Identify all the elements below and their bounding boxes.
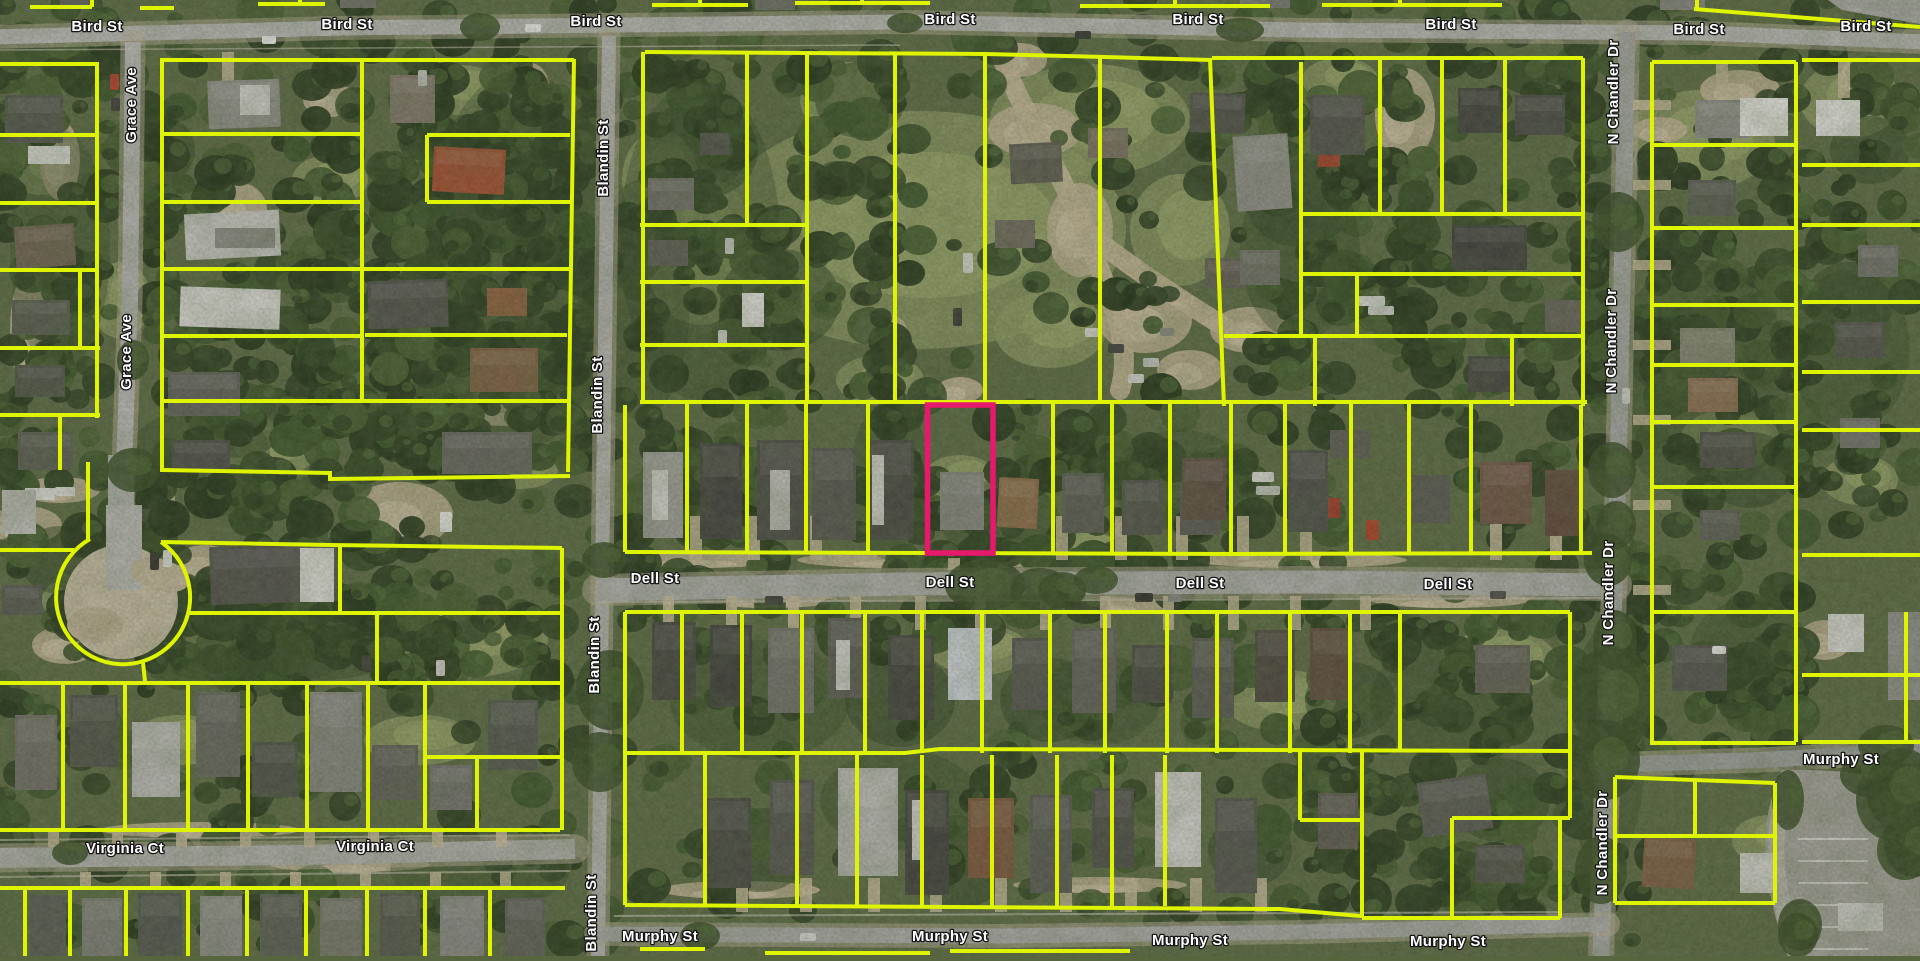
svg-text:Murphy St: Murphy St (1410, 933, 1486, 950)
svg-text:Blandin St: Blandin St (595, 119, 612, 196)
svg-text:Bird St: Bird St (1840, 18, 1891, 35)
svg-text:Bird St: Bird St (321, 16, 372, 33)
svg-text:Bird St: Bird St (1172, 11, 1223, 28)
svg-text:Bird St: Bird St (1673, 21, 1724, 38)
svg-text:Dell St: Dell St (926, 574, 975, 591)
svg-text:Grace Ave: Grace Ave (118, 314, 135, 390)
svg-text:Murphy St: Murphy St (622, 928, 698, 945)
svg-text:Virginia Ct: Virginia Ct (86, 840, 164, 857)
svg-text:Dell St: Dell St (1176, 575, 1225, 592)
svg-text:N Chandler Dr: N Chandler Dr (1605, 40, 1622, 145)
svg-text:N Chandler Dr: N Chandler Dr (1594, 791, 1611, 896)
svg-text:Blandin St: Blandin St (589, 356, 606, 433)
svg-text:Bird St: Bird St (1425, 16, 1476, 33)
svg-text:Bird St: Bird St (570, 13, 621, 30)
svg-text:Virginia Ct: Virginia Ct (336, 838, 414, 855)
svg-text:Dell St: Dell St (631, 570, 680, 587)
svg-text:Bird St: Bird St (71, 18, 122, 35)
svg-text:Murphy St: Murphy St (1152, 932, 1228, 949)
svg-text:Dell St: Dell St (1424, 576, 1473, 593)
svg-text:N Chandler Dr: N Chandler Dr (1603, 289, 1620, 394)
svg-text:Grace Ave: Grace Ave (123, 67, 140, 143)
svg-text:Blandin St: Blandin St (586, 616, 603, 693)
svg-text:Blandin St: Blandin St (583, 874, 600, 951)
svg-text:Murphy St: Murphy St (1803, 751, 1879, 768)
svg-text:Murphy St: Murphy St (912, 928, 988, 945)
svg-text:Bird St: Bird St (924, 11, 975, 28)
svg-text:N Chandler Dr: N Chandler Dr (1600, 541, 1617, 646)
